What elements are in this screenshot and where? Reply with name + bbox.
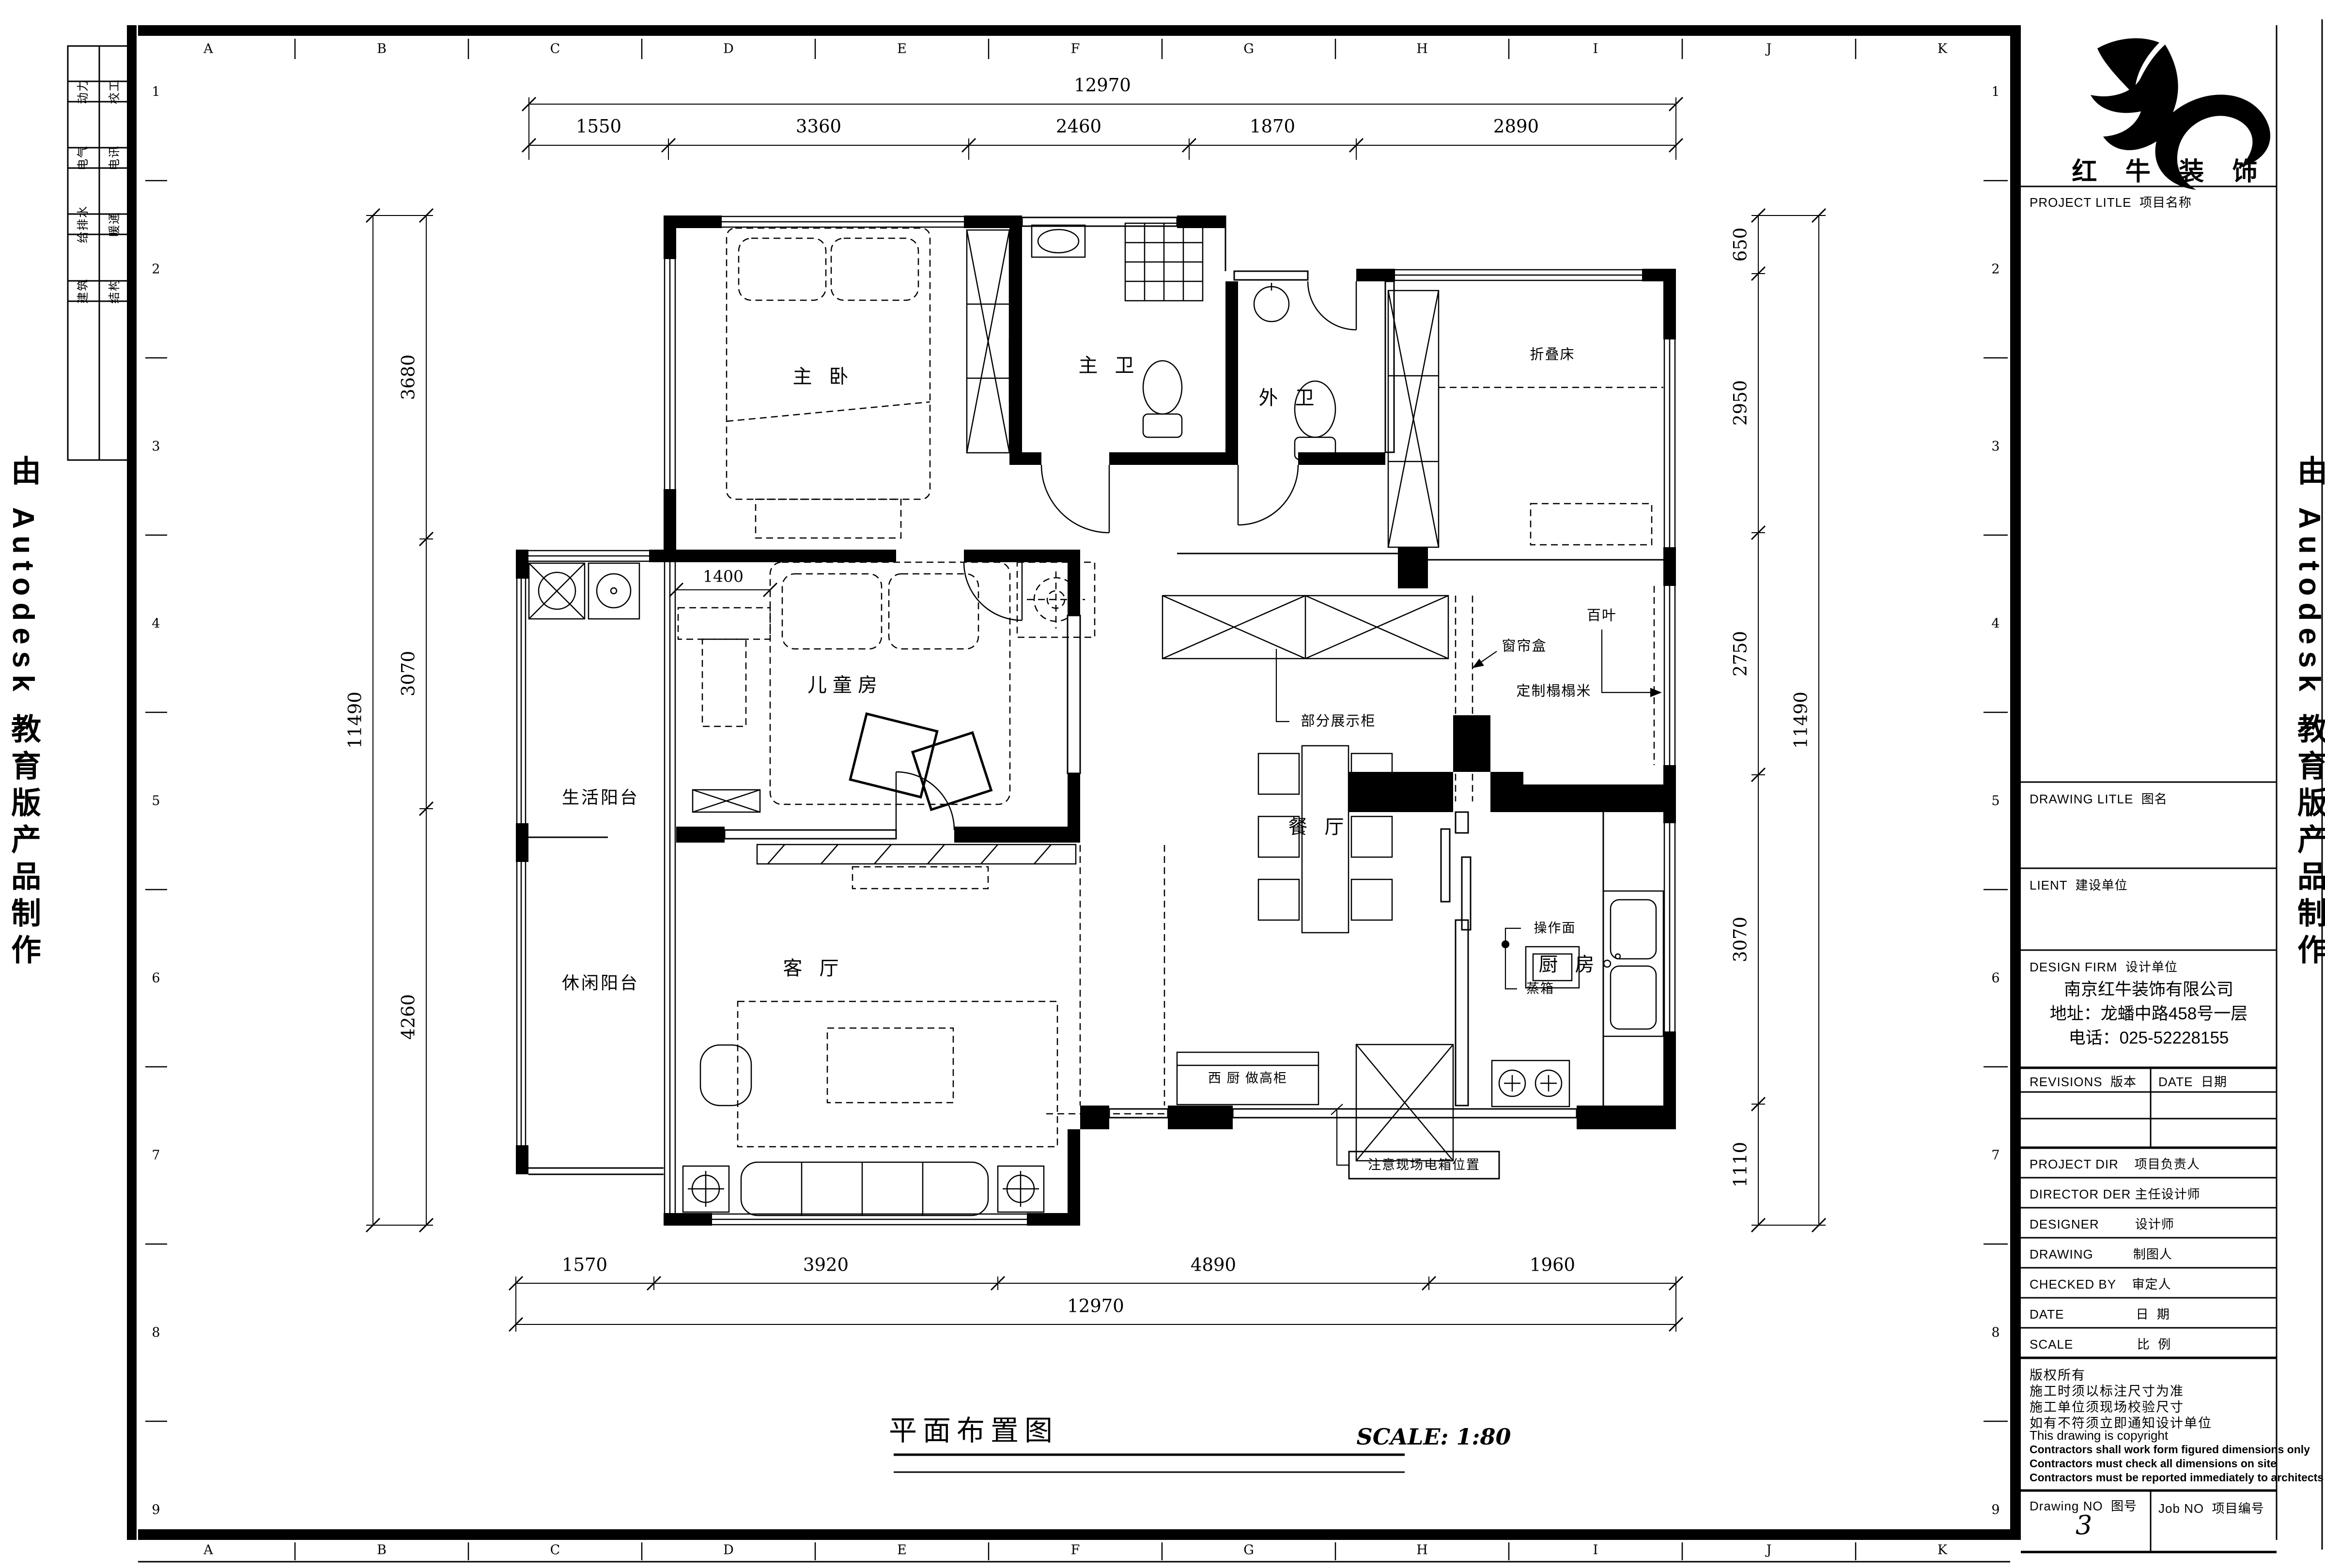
field-revisions: REVISIONS 版本 (2030, 1072, 2137, 1090)
annotation-west-kitchen-cabinet: 西 厨 做高柜 (1208, 1072, 1287, 1085)
title-block-lines (2021, 186, 2277, 1552)
company-name: 南京红牛装饰有限公司 (2064, 976, 2233, 1000)
annotation-electric-box-note: 注意现场电箱位置 (1368, 1159, 1480, 1172)
field-date-col: DATE 日期 (2158, 1072, 2227, 1090)
annotation-curtain-box: 窗帘盒 (1502, 640, 1547, 654)
note-line: This drawing is copyright (2030, 1428, 2168, 1443)
dim-bottom-total: 12970 (1067, 1297, 1124, 1315)
room-label-guest-bath: 外 卫 (1258, 388, 1320, 408)
annotation-custom-tatami: 定制榻榻米 (1516, 685, 1591, 699)
cabinets (529, 230, 1453, 1161)
footer-rule (894, 1455, 1405, 1472)
company-phone: 电话：025-52228155 (2069, 1024, 2229, 1049)
drawing-scale: SCALE: 1:80 (1357, 1426, 1511, 1448)
room-label-leisure-balcony: 休闲阳台 (562, 974, 639, 992)
field-design-firm: DESIGN FIRM 设计单位 (2030, 957, 2178, 975)
discipline-boxes (68, 46, 131, 460)
annotation-display-cabinet: 部分展示柜 (1301, 715, 1376, 729)
dim-left-total: 11490 (346, 692, 364, 749)
room-label-living-room: 客 厅 (783, 959, 844, 978)
drawing-no-value: 3 (2076, 1510, 2092, 1540)
room-label-kids-room: 儿童房 (807, 676, 883, 695)
annotation-louver: 百叶 (1587, 609, 1617, 623)
room-label-utility-balcony: 生活阳台 (562, 789, 639, 806)
note-line: Contractors must be reported immediately… (2030, 1471, 2324, 1484)
note-line: Contractors must check all dimensions on… (2030, 1457, 2277, 1470)
sheet-frame-lines (138, 19, 2322, 1562)
company-address: 地址：龙蟠中路458号一层 (2050, 1000, 2247, 1025)
dim-inner-1400: 1400 (703, 569, 744, 584)
floor-plan-sheet: 由 Autodesk 教育版产品制作 由 Autodesk 教育版产品制作 AB… (0, 0, 2325, 1568)
annotation-work-surface: 操作面 (1534, 922, 1576, 935)
field-job-no: Job NO 项目编号 (2158, 1499, 2264, 1517)
annotation-folding-bed: 折叠床 (1530, 348, 1575, 362)
watermark-right: 由 Autodesk 教育版产品制作 (2287, 455, 2325, 971)
plan-drawing (0, 0, 2325, 1568)
dimension-lines (366, 97, 1826, 1332)
dim-top-total: 12970 (1074, 77, 1131, 94)
note-line: Contractors shall work form figured dime… (2030, 1443, 2310, 1456)
drawing-title: 平面布置图 (889, 1417, 1058, 1445)
field-project-title: PROJECT LITLE 项目名称 (2030, 193, 2192, 211)
logo-name: 红 牛 装 饰 (2072, 151, 2268, 187)
watermark-left: 由 Autodesk 教育版产品制作 (1, 455, 45, 971)
room-label-master-bedroom: 主 卧 (792, 367, 854, 386)
field-client: LIENT 建设单位 (2030, 876, 2128, 893)
dim-right-total: 11490 (1792, 692, 1810, 749)
field-drawing-title: DRAWING LITLE 图名 (2030, 789, 2168, 807)
room-label-dining-room: 餐 厅 (1288, 817, 1349, 837)
annotation-steam-oven: 蒸箱 (1526, 983, 1554, 996)
room-label-kitchen: 厨 房 (1538, 955, 1600, 974)
room-label-master-bath: 主 卫 (1078, 356, 1140, 375)
